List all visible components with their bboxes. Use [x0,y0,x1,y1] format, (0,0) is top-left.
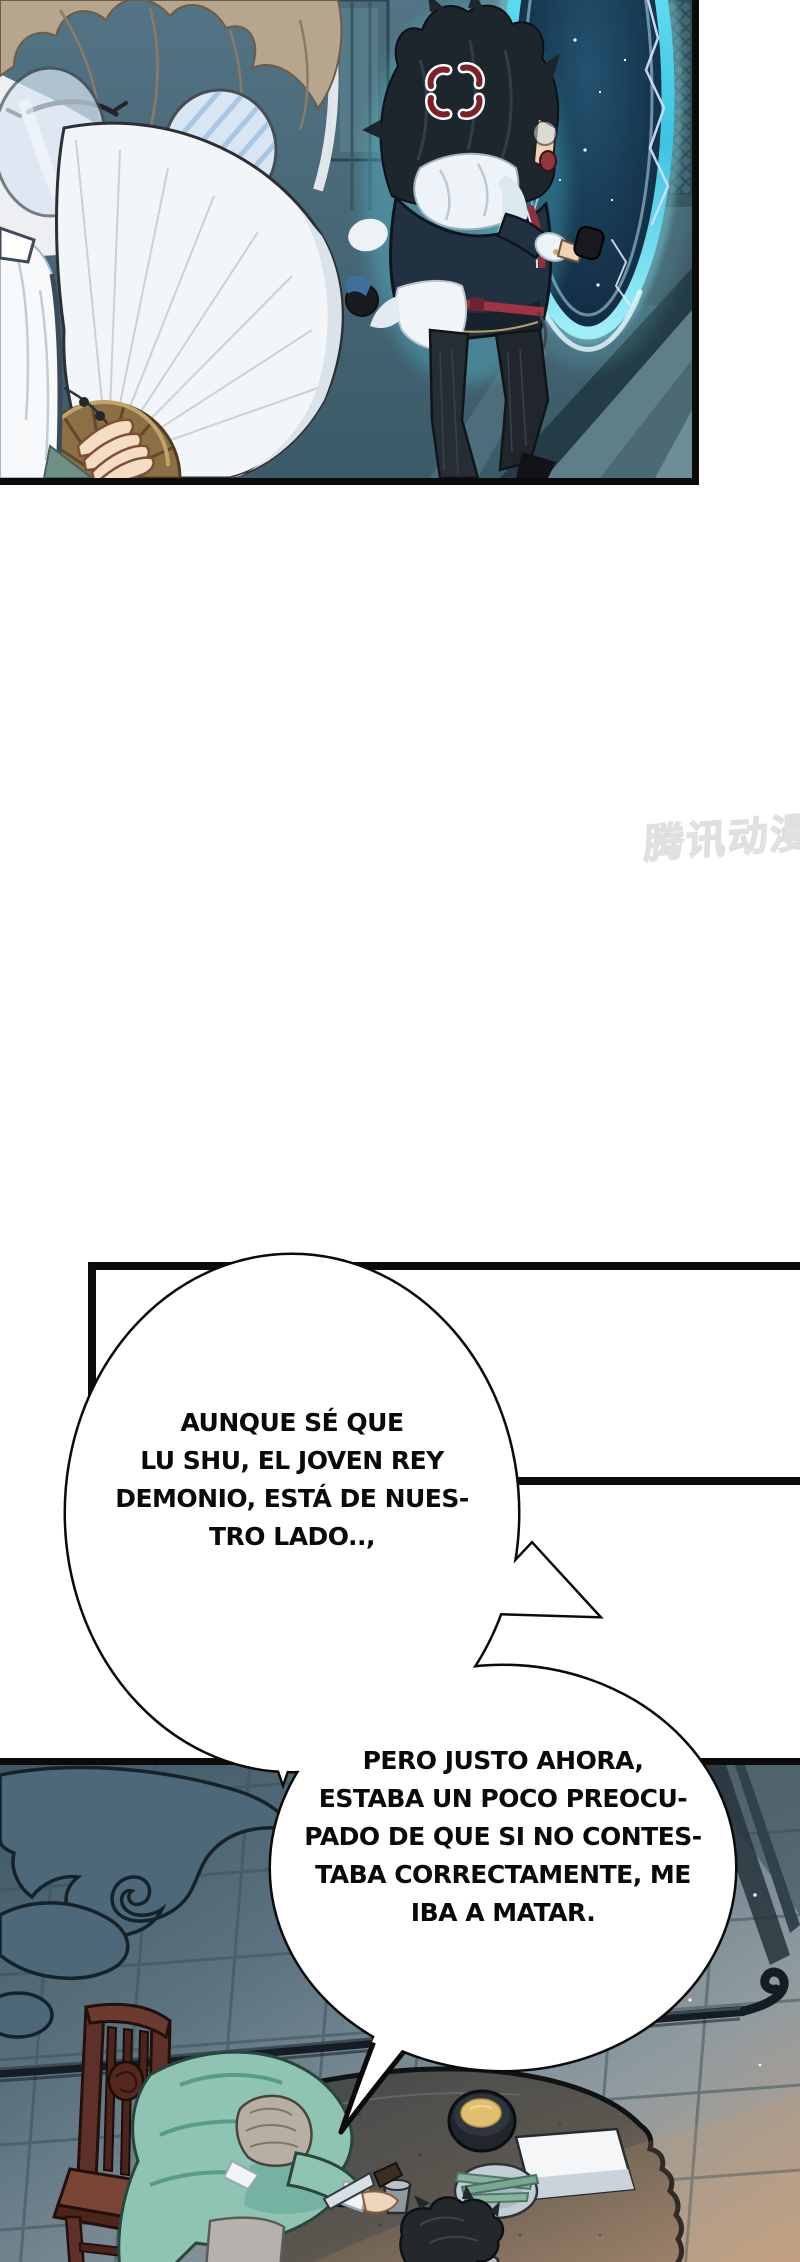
panel-portal-scene [0,0,699,485]
speech-bubble-2-text: PERO JUSTO AHORA, ESTABA UN POCO PREOCU-… [268,1742,738,1932]
speech-bubbles [0,1240,800,2155]
comic-page: 腾讯动漫 [0,0,800,2262]
watermark-text: 腾讯动漫 [643,800,800,870]
gray-trousers [206,2218,284,2262]
bubble-line: PERO JUSTO AHORA, [268,1742,738,1780]
portal-scene-art [0,0,692,478]
speech-bubble-1-text: AUNQUE SÉ QUE LU SHU, EL JOVEN REY DEMON… [97,1404,487,1556]
bubble-line: DEMONIO, ESTÁ DE NUES- [97,1480,487,1518]
bubble-line: ESTABA UN POCO PREOCU- [268,1780,738,1818]
bubble-line: IBA A MATAR. [268,1894,738,1932]
open-mouth [540,151,556,171]
bubble-line: TRO LADO.., [97,1518,487,1556]
bubble-line: TABA CORRECTAMENTE, ME [268,1856,738,1894]
bubble-line: LU SHU, EL JOVEN REY [97,1442,487,1480]
bubble-line: AUNQUE SÉ QUE [97,1404,487,1442]
bubble-line: PADO DE QUE SI NO CONTES- [268,1818,738,1856]
